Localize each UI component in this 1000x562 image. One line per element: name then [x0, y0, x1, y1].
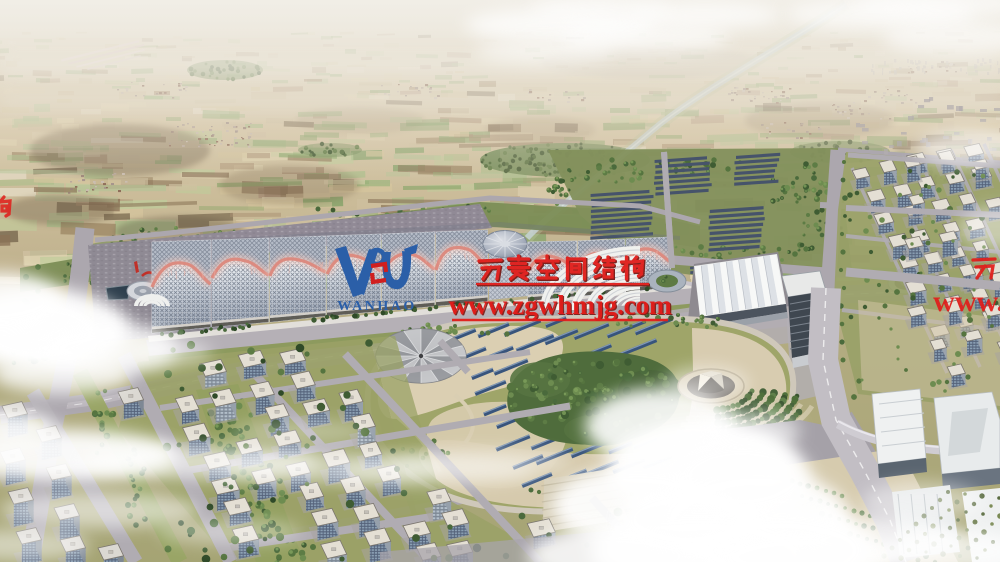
svg-text:www.: www. — [933, 285, 1000, 318]
svg-text:www.zgwhmjg.com: www.zgwhmjg.com — [448, 289, 671, 320]
svg-text:WANHAO: WANHAO — [337, 299, 417, 314]
